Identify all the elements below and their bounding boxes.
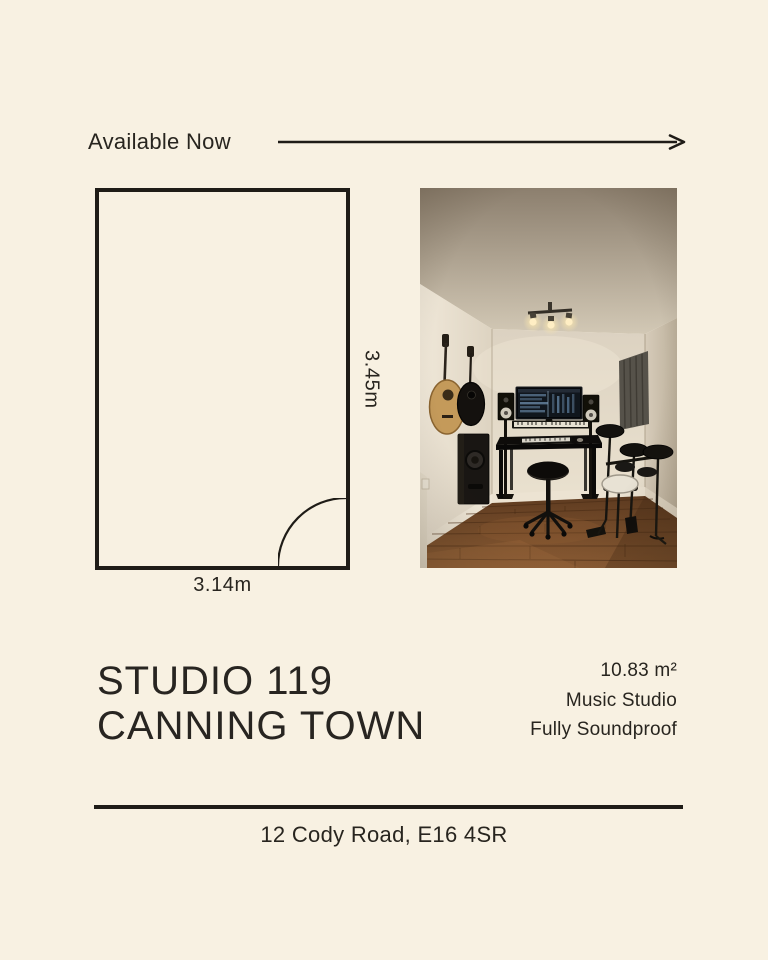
door-swing-arc-icon: [278, 498, 346, 566]
floorplan-width-label: 3.14m: [95, 574, 350, 597]
property-type: Music Studio: [530, 686, 677, 716]
soundproof-feature: Fully Soundproof: [530, 715, 677, 745]
floorplan-height-label: 3.45m: [353, 188, 389, 570]
listing-flyer: Available Now 3.45m 3.14m: [0, 0, 768, 960]
floorplan-outline: [95, 188, 350, 570]
listing-title-line1: STUDIO 119: [97, 659, 425, 704]
area-value: 10.83 m²: [530, 656, 677, 686]
arrow-right-icon: [278, 133, 688, 151]
address: 12 Cody Road, E16 4SR: [0, 822, 768, 848]
studio-photo: [420, 188, 677, 568]
listing-title: STUDIO 119 CANNING TOWN: [97, 659, 425, 749]
listing-title-line2: CANNING TOWN: [97, 704, 425, 749]
studio-photo-illustration: [420, 188, 677, 568]
availability-label: Available Now: [88, 129, 231, 155]
divider-line: [94, 805, 683, 809]
listing-details: 10.83 m² Music Studio Fully Soundproof: [530, 656, 677, 745]
